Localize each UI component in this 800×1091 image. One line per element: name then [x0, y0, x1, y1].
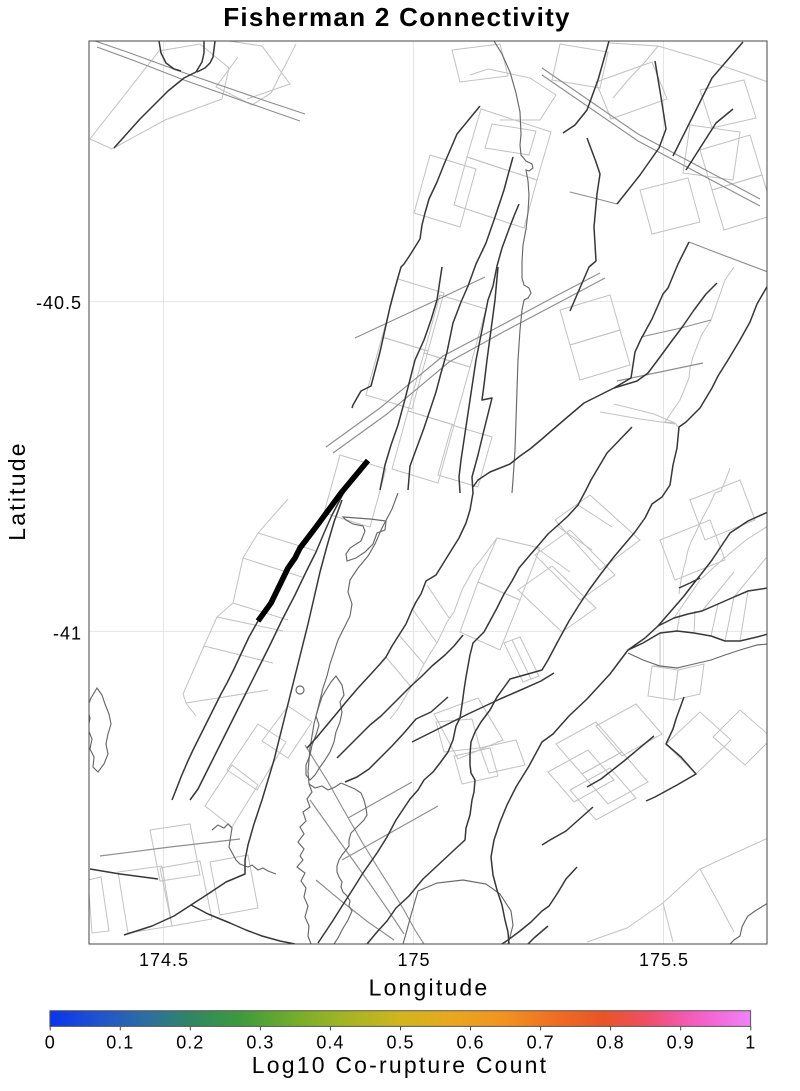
svg-text:Latitude: Latitude [4, 441, 30, 540]
svg-text:0: 0 [45, 1033, 56, 1053]
svg-text:0.8: 0.8 [597, 1033, 625, 1053]
svg-text:Log10 Co-rupture Count: Log10 Co-rupture Count [252, 1052, 548, 1078]
svg-text:Fisherman 2 Connectivity: Fisherman 2 Connectivity [223, 2, 571, 32]
svg-text:0.3: 0.3 [246, 1033, 274, 1053]
svg-text:0.7: 0.7 [527, 1033, 555, 1053]
svg-text:175: 175 [397, 950, 430, 970]
svg-text:0.1: 0.1 [106, 1033, 134, 1053]
svg-text:-40.5: -40.5 [36, 293, 82, 313]
svg-text:174.5: 174.5 [139, 950, 189, 970]
svg-text:-41: -41 [53, 624, 82, 644]
svg-text:Longitude: Longitude [369, 975, 490, 1001]
svg-text:0.4: 0.4 [316, 1033, 344, 1053]
svg-text:0.9: 0.9 [667, 1033, 695, 1053]
svg-text:0.5: 0.5 [386, 1033, 414, 1053]
svg-text:175.5: 175.5 [639, 950, 689, 970]
svg-text:0.2: 0.2 [176, 1033, 204, 1053]
svg-text:1: 1 [745, 1033, 756, 1053]
svg-text:0.6: 0.6 [456, 1033, 484, 1053]
